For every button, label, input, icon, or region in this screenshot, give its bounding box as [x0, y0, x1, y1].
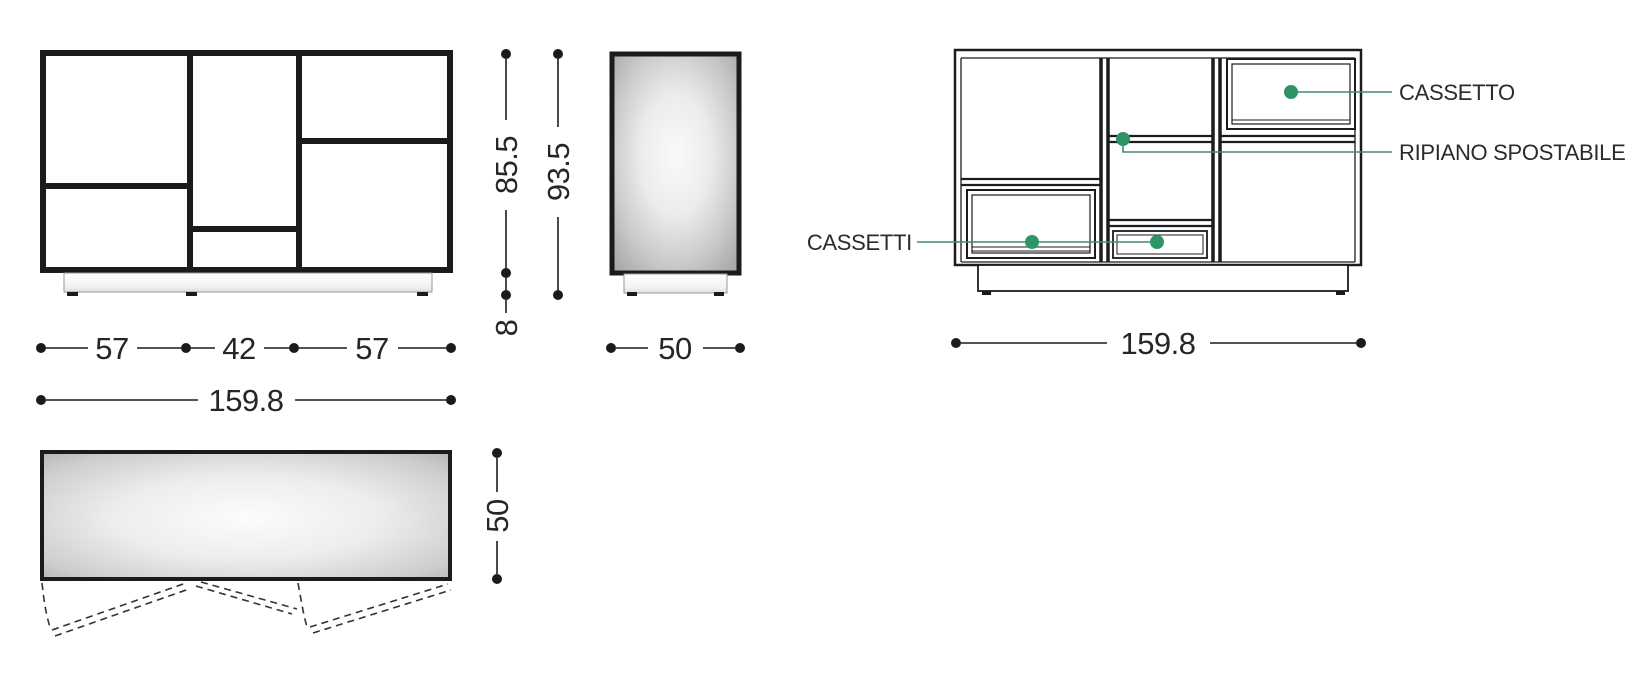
open-view — [955, 50, 1361, 295]
cassetti-marker-dot-left — [1025, 235, 1039, 249]
dim-dot — [492, 574, 502, 584]
dim-dot — [501, 268, 511, 278]
drawing-canvas: CASSETTO RIPIANO SPOSTABILE CASSETTI 57 … — [0, 0, 1634, 676]
label-cassetti: CASSETTI — [807, 230, 912, 255]
dim-total-height: 93.5 — [541, 49, 576, 300]
dim-open-total-width: 159.8 — [951, 326, 1366, 361]
dim-dot — [553, 49, 563, 59]
dim-value-total-width: 159.8 — [208, 383, 283, 418]
right-door-edge-2 — [313, 590, 451, 633]
dim-dot — [553, 290, 563, 300]
front-foot-mid — [186, 292, 197, 296]
technical-drawing-svg: CASSETTO RIPIANO SPOSTABILE CASSETTI 57 … — [0, 0, 1634, 676]
side-plinth — [624, 274, 727, 293]
dim-top-depth: 50 — [480, 448, 515, 584]
mid-door-edge-2 — [196, 586, 292, 614]
dim-dot — [951, 338, 961, 348]
dim-front-total-width: 159.8 — [36, 383, 456, 418]
dim-dot — [501, 49, 511, 59]
dim-dot — [446, 343, 456, 353]
door-swing-lines — [42, 582, 451, 636]
open-foot-right — [1336, 291, 1345, 295]
dim-side-depth: 50 — [606, 331, 745, 366]
dim-value-57-right: 57 — [355, 331, 388, 366]
right-door-edge-1 — [310, 584, 448, 627]
dim-value-total-height: 93.5 — [541, 143, 576, 201]
dim-dot — [492, 448, 502, 458]
label-cassetto: CASSETTO — [1399, 80, 1515, 105]
right-door-arc — [298, 583, 307, 627]
mid-door-edge-1 — [201, 582, 297, 609]
front-foot-right — [417, 292, 428, 296]
left-door-edge-1 — [52, 583, 186, 630]
ripiano-marker-dot — [1116, 132, 1130, 146]
dim-front-widths: 57 42 57 — [36, 331, 456, 366]
open-view-plinth — [978, 265, 1348, 291]
top-view — [42, 452, 451, 636]
front-carcass-outline — [43, 53, 450, 270]
open-foot-left — [982, 291, 991, 295]
dim-value-42: 42 — [222, 331, 255, 366]
side-panel — [612, 54, 739, 273]
dim-dot — [36, 343, 46, 353]
side-foot-right — [714, 292, 724, 296]
side-foot-left — [627, 292, 637, 296]
dim-dot — [36, 395, 46, 405]
dim-value-side-depth: 50 — [658, 331, 692, 366]
dim-dot — [289, 343, 299, 353]
open-carcass-outline — [955, 50, 1361, 265]
dim-dot — [735, 343, 745, 353]
dim-body-height: 85.5 — [489, 49, 524, 278]
cassetti-marker-dot-right — [1150, 235, 1164, 249]
front-plinth — [64, 273, 432, 292]
front-view — [43, 53, 450, 296]
left-door-edge-2 — [55, 589, 189, 636]
cassetto-marker-dot — [1284, 85, 1298, 99]
dim-value-57-left: 57 — [95, 331, 128, 366]
dim-value-plinth-height: 8 — [489, 320, 524, 337]
front-foot-left — [67, 292, 78, 296]
side-view — [612, 54, 739, 296]
label-ripiano-spostabile: RIPIANO SPOSTABILE — [1399, 140, 1625, 165]
dim-dot — [446, 395, 456, 405]
dim-dot — [501, 290, 511, 300]
dim-value-top-depth: 50 — [480, 499, 515, 533]
left-door-arc — [42, 583, 51, 630]
dim-dot — [1356, 338, 1366, 348]
dim-plinth-height: 8 — [489, 278, 524, 336]
dim-value-body-height: 85.5 — [489, 136, 524, 194]
dim-dot — [606, 343, 616, 353]
dim-dot — [181, 343, 191, 353]
dim-value-open-total-width: 159.8 — [1120, 326, 1195, 361]
top-panel — [42, 452, 450, 579]
